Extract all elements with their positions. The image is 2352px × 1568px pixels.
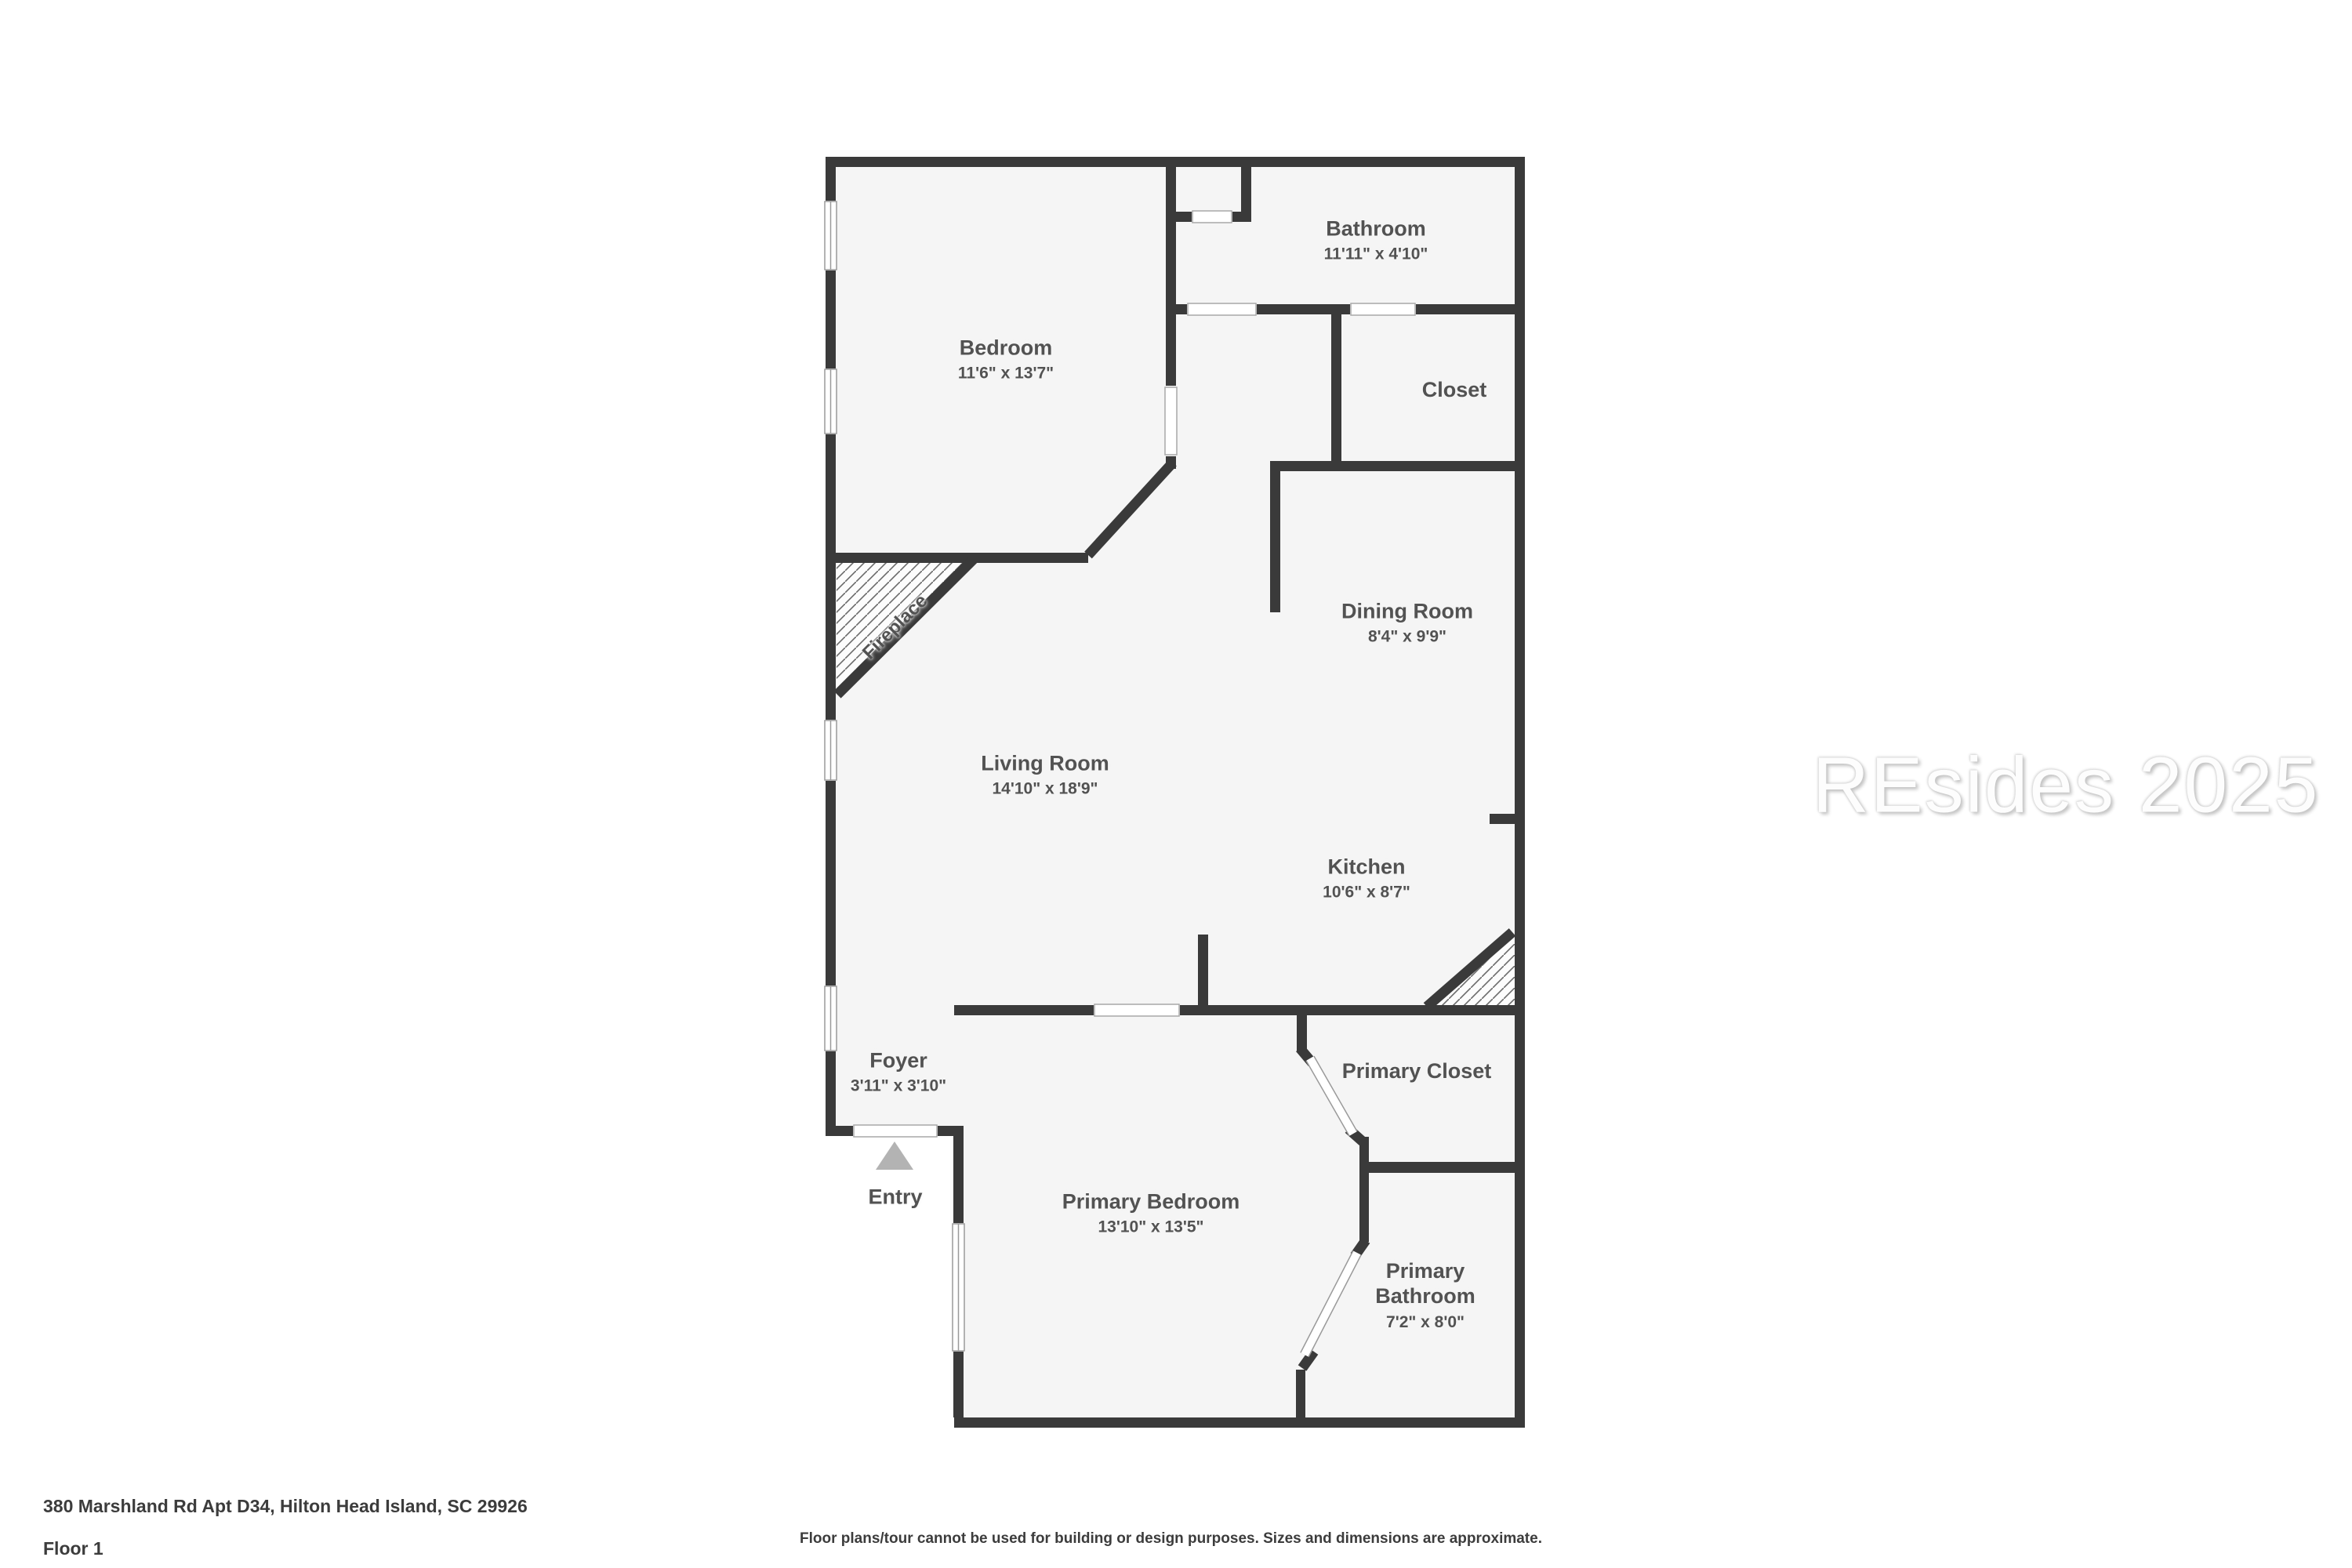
watermark: REsides 2025 [1813,741,2320,831]
footer-floor-label: Floor 1 [43,1538,103,1559]
entry-label: Entry [868,1185,922,1210]
floor-plan-page: Bathroom 11'11" x 4'10" Bedroom 11'6" x … [0,0,2352,1568]
footer-address: 380 Marshland Rd Apt D34, Hilton Head Is… [43,1496,528,1517]
footer-disclaimer: Floor plans/tour cannot be used for buil… [800,1530,1542,1548]
entry-arrow-icon [876,1142,913,1170]
